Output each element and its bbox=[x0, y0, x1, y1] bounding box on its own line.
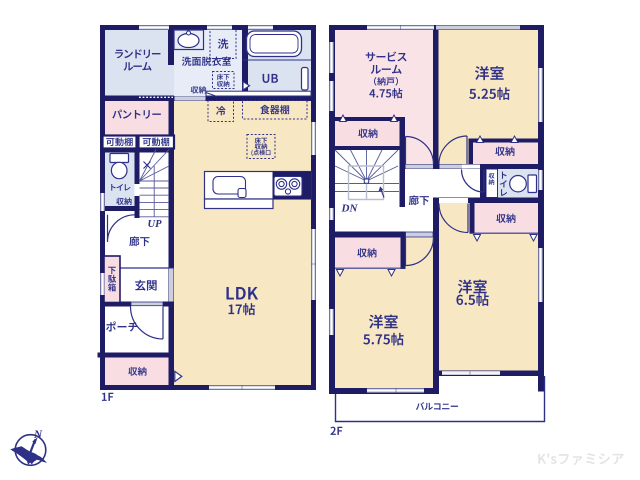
svg-text:N: N bbox=[33, 429, 43, 441]
svg-text:DN: DN bbox=[341, 203, 359, 215]
svg-text:UP: UP bbox=[148, 219, 163, 230]
